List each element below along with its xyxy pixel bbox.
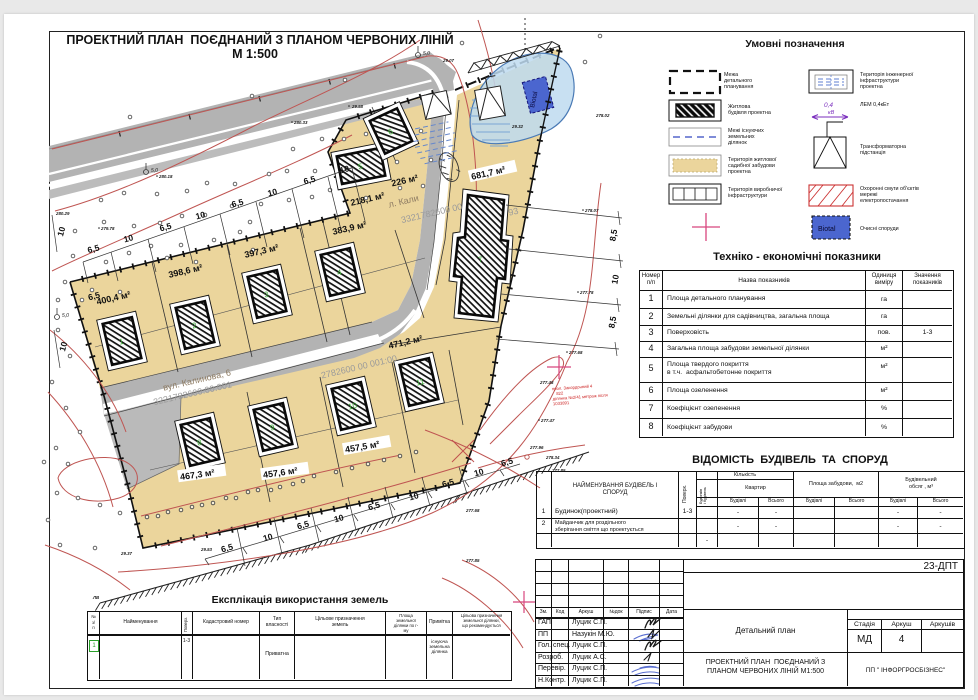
- svg-text:проектна: проектна: [860, 84, 883, 90]
- svg-text:електропостачання: електропостачання: [860, 198, 909, 204]
- svg-text:0,4: 0,4: [824, 102, 833, 109]
- svg-text:підстанція: підстанція: [860, 150, 886, 156]
- svg-text:Очисні споруди: Очисні споруди: [860, 226, 899, 232]
- svg-text:кВ: кВ: [828, 110, 835, 116]
- svg-text:планування: планування: [724, 84, 753, 90]
- svg-text:проектна: проектна: [728, 169, 751, 175]
- svg-text:будівля проектна: будівля проектна: [728, 110, 771, 116]
- svg-text:інфраструктури: інфраструктури: [728, 193, 767, 199]
- svg-text:ЛЕМ 0,4кЕт: ЛЕМ 0,4кЕт: [860, 102, 890, 108]
- svg-text:ділянок: ділянок: [728, 140, 747, 146]
- svg-text:Biotal: Biotal: [818, 226, 836, 233]
